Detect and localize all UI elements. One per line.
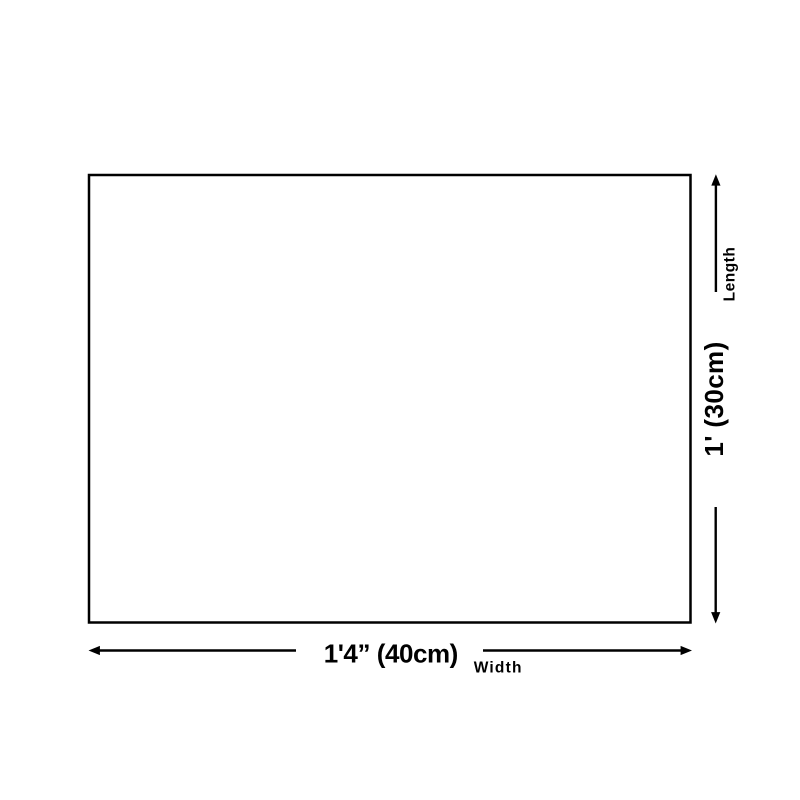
svg-text:Width: Width <box>474 659 523 676</box>
svg-text:Length: Length <box>722 247 739 302</box>
svg-text:1' (30cm): 1' (30cm) <box>699 341 729 456</box>
svg-text:1'4” (40cm): 1'4” (40cm) <box>324 638 458 668</box>
